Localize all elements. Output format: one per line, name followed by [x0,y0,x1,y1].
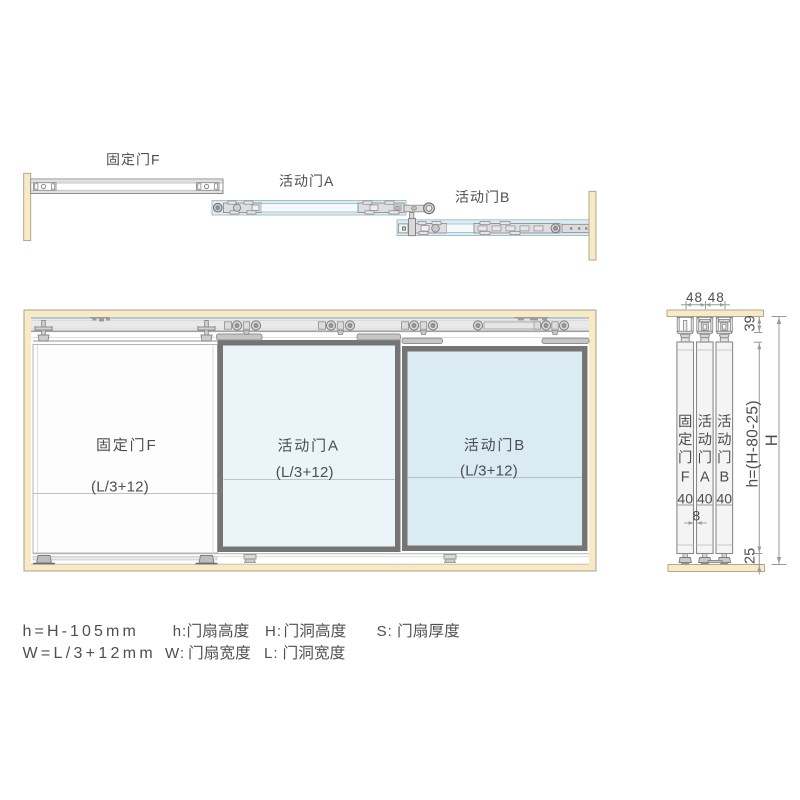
svg-text:h=(H-80-25): h=(H-80-25) [745,400,762,487]
svg-text:40: 40 [677,491,693,507]
svg-text:39: 39 [743,315,759,331]
svg-text:F: F [681,470,690,486]
svg-text:B: B [514,437,524,454]
svg-text:H: H [763,434,781,446]
svg-text:h:: h: [173,623,188,640]
svg-text:A: A [700,470,710,486]
svg-text:W:: W: [165,645,185,662]
svg-text:8: 8 [692,508,700,524]
svg-text:F: F [151,151,160,167]
svg-text:B: B [719,470,729,486]
svg-text:L:: L: [264,645,279,662]
svg-text:h=H-105mm: h=H-105mm [23,623,139,640]
svg-text:25: 25 [743,548,759,564]
svg-text:F: F [147,437,156,454]
svg-text:(L/3+12): (L/3+12) [276,464,334,481]
svg-text:W=L/3+12mm: W=L/3+12mm [23,645,156,662]
svg-text:H:: H: [265,623,282,640]
svg-text:A: A [328,438,338,455]
svg-text:(L/3+12): (L/3+12) [91,479,149,496]
svg-text:S:: S: [377,623,393,640]
svg-text:B: B [500,189,509,205]
svg-text:A: A [324,173,334,189]
svg-text:40: 40 [717,491,733,507]
svg-text:40: 40 [697,491,713,507]
svg-text:(L/3+12): (L/3+12) [460,462,518,479]
